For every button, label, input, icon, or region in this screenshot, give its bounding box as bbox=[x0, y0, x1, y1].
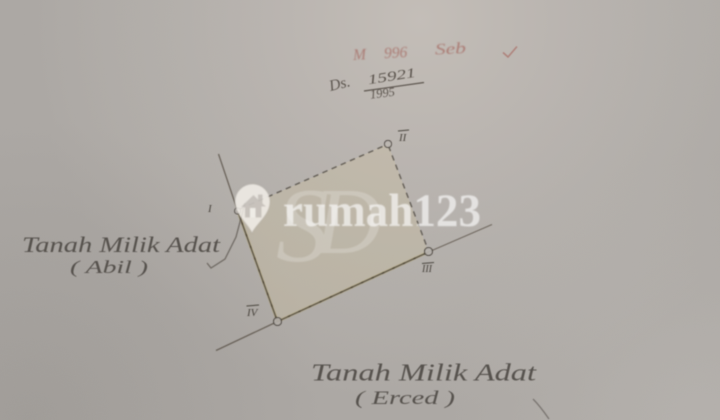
svg-text:Tanah Milik Adat: Tanah Milik Adat bbox=[22, 232, 221, 257]
svg-text:( Erced ): ( Erced ) bbox=[355, 388, 455, 409]
svg-text:II: II bbox=[398, 132, 408, 144]
svg-text:Seb: Seb bbox=[434, 40, 466, 59]
svg-text:IV: IV bbox=[246, 307, 259, 319]
svg-text:Tanah Milik Adat: Tanah Milik Adat bbox=[311, 361, 538, 387]
svg-text:996: 996 bbox=[384, 44, 408, 62]
svg-text:M: M bbox=[352, 46, 368, 64]
svg-text:rumah123: rumah123 bbox=[283, 185, 481, 237]
svg-text:III: III bbox=[421, 264, 433, 275]
svg-text:( Abil ): ( Abil ) bbox=[70, 257, 148, 278]
